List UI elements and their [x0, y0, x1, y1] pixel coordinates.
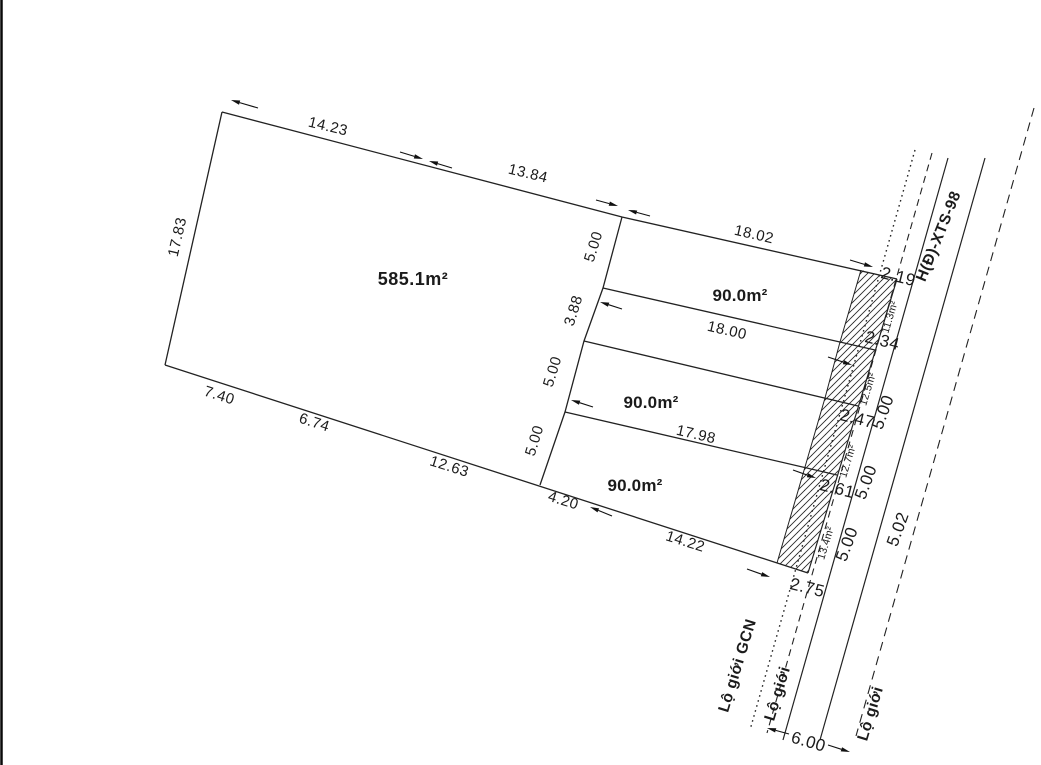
- road-name-label: H(Đ)-XTS-98: [913, 189, 965, 284]
- road-width-3: 5.00: [832, 524, 862, 563]
- road-width-4: 5.02: [883, 509, 913, 548]
- lot1-area-label: 90.0m²: [712, 286, 767, 305]
- dim-column-2: 3.88: [561, 293, 586, 328]
- road-edge-solid-line-1: [783, 158, 948, 740]
- survey-drawing: 14.23 13.84 17.83 18.02 18.00 17.98 7.40…: [0, 0, 1041, 765]
- dim-column-4: 5.00: [522, 423, 547, 458]
- dimension-arrow: [400, 152, 423, 159]
- dimension-arrow: [747, 569, 770, 577]
- dim-top-2: 13.84: [507, 161, 550, 187]
- road-width-2: 5.00: [851, 462, 881, 501]
- gcn-road-boundary-label: Lộ giới GCN: [715, 617, 759, 714]
- lot3-area-label: 90.0m²: [607, 476, 662, 495]
- dim-lot1-bottom: 18.00: [706, 318, 749, 344]
- lot2-area-label: 90.0m²: [623, 393, 678, 412]
- cadastral-plan-svg: 14.23 13.84 17.83 18.02 18.00 17.98 7.40…: [0, 0, 1041, 765]
- dimension-arrow: [231, 100, 258, 108]
- dim-column-1: 5.00: [581, 229, 606, 264]
- dim-bottom-2: 6.74: [297, 410, 332, 436]
- dimension-labels: 14.23 13.84 17.83 18.02 18.00 17.98 7.40…: [165, 114, 918, 756]
- dimension-arrow: [600, 302, 622, 309]
- bottom-boundary: [165, 365, 808, 573]
- road-boundary-label-2: Lộ giới: [854, 684, 887, 742]
- dim-lot2-bottom: 17.98: [675, 422, 718, 448]
- dimension-arrow: [571, 400, 593, 407]
- dim-bottom-4: 4.20: [546, 488, 581, 514]
- dim-left-edge: 17.83: [165, 216, 191, 259]
- dim-bottom-5: 14.22: [664, 528, 707, 556]
- dim-column-3: 5.00: [540, 354, 565, 389]
- strip-tick-5: 2.75: [788, 574, 827, 601]
- dimension-arrow: [596, 200, 618, 206]
- main-parcel-area-label: 585.1m²: [378, 269, 449, 289]
- dimension-arrow: [628, 210, 650, 216]
- dimension-arrow: [850, 260, 873, 267]
- road-boundary-dashed-line-1: [767, 153, 932, 733]
- main-parcel-top-edge: [222, 112, 622, 217]
- road-width-1: 5.00: [868, 392, 898, 431]
- road-boundary-label-1: Lộ giới: [761, 664, 794, 722]
- dimension-arrow: [828, 745, 850, 752]
- dim-bottom-3: 12.63: [428, 453, 471, 481]
- road-lines: [750, 108, 1034, 740]
